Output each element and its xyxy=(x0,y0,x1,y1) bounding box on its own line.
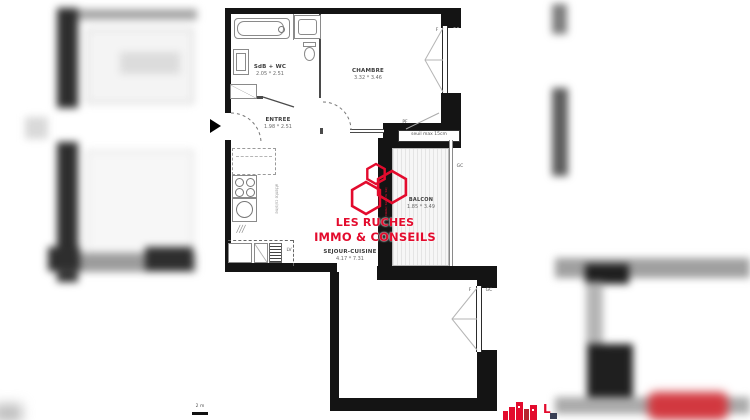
logo-fragment-building xyxy=(509,407,515,420)
logo-fragment-building xyxy=(524,409,529,420)
main-plan: seuil max 15cm xyxy=(0,0,750,420)
room-dims: 3.32 * 3.46 xyxy=(338,75,398,82)
logo-fragment-dark-mark xyxy=(550,413,557,419)
logo-fragment-window-dot xyxy=(518,406,520,408)
room-dims: 4.17 * 7.31 xyxy=(319,256,381,263)
logo-fragment-building xyxy=(516,402,523,420)
logo-fragment-window-dot xyxy=(532,409,534,411)
room-name: SEJOUR-CUISINE xyxy=(319,249,381,256)
scale-bar xyxy=(192,412,208,415)
logo-fragment-building xyxy=(530,405,537,420)
window-label-f-bottom: F xyxy=(466,288,474,294)
room-name: ENTREE xyxy=(248,117,308,124)
window-label-gc-bottom: GC xyxy=(483,288,495,294)
room-dims: 1.85 * 3.49 xyxy=(391,204,451,211)
window-label-gc-top: GC xyxy=(450,28,462,34)
scale-label: 2 m xyxy=(191,404,209,410)
room-dims: 2.05 * 2.51 xyxy=(240,71,300,78)
loggia-label-gc: GC xyxy=(454,164,466,170)
chambre-door-arc xyxy=(323,102,351,130)
room-dims: 1.98 * 2.51 xyxy=(248,124,308,131)
loggia-label-pf: PF xyxy=(400,120,410,126)
room-label-entree: ENTREE 1.98 * 2.51 xyxy=(248,117,308,131)
bathroom-door-leaf xyxy=(263,97,294,107)
room-name: SdB + WC xyxy=(240,64,300,71)
floorplan-page: seuil max 15cm xyxy=(0,0,750,420)
logo-fragment-building xyxy=(503,411,508,420)
room-label-balcon: BALCON 1.85 * 3.49 xyxy=(391,197,451,211)
chambre-window-swing xyxy=(425,28,443,92)
room-name: BALCON xyxy=(391,197,451,204)
room-label-sdb: SdB + WC 2.05 * 2.51 xyxy=(240,64,300,78)
window-label-f-top: F xyxy=(433,28,441,34)
room-label-sejour: SEJOUR-CUISINE 4.17 * 7.31 xyxy=(319,249,381,263)
sejour-window-swing xyxy=(452,288,477,350)
plan-linework xyxy=(0,0,750,420)
loggia-door-swing xyxy=(406,113,439,129)
logo-fragment-bottom: L xyxy=(503,400,563,420)
room-label-chambre: CHAMBRE 3.32 * 3.46 xyxy=(338,68,398,82)
room-name: CHAMBRE xyxy=(338,68,398,75)
